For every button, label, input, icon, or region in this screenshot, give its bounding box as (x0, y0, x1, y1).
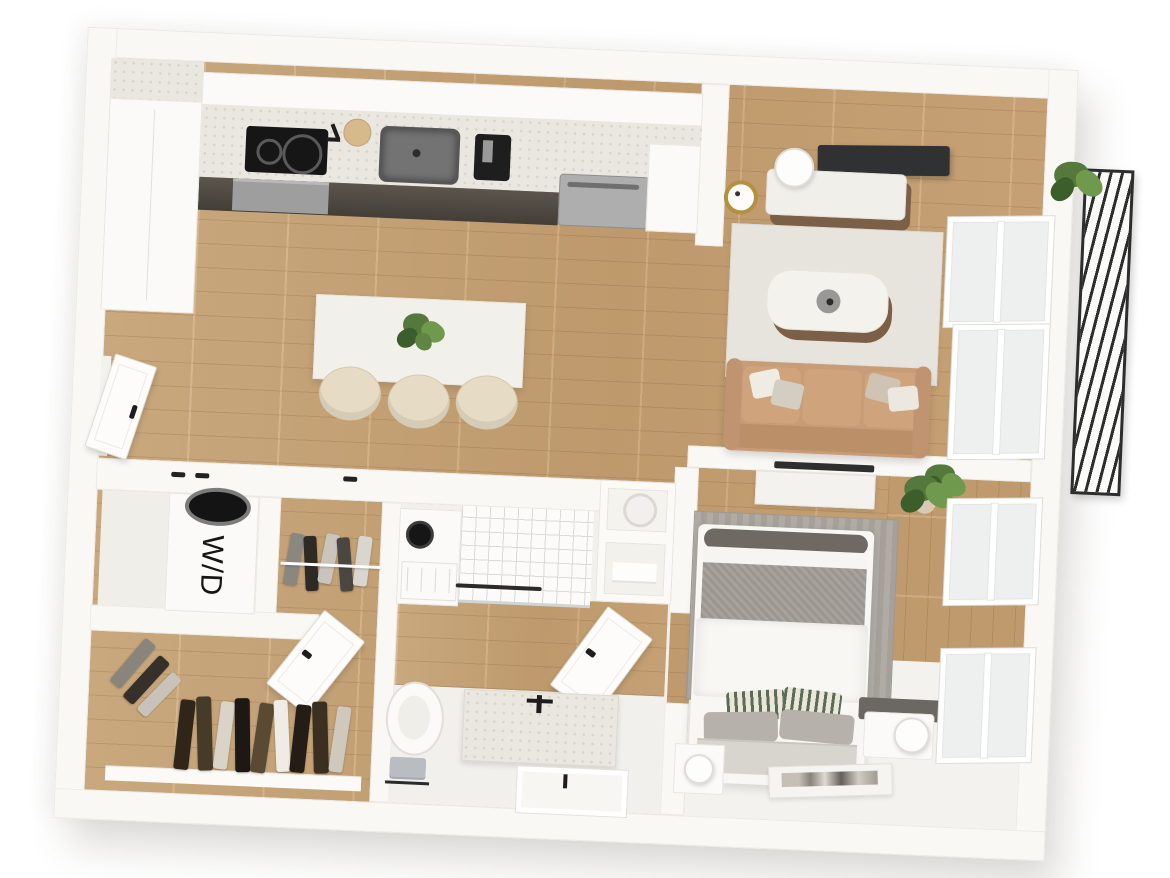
floor-plan-canvas: W/D (0, 0, 1170, 878)
corner-counter (110, 58, 205, 104)
washer-dryer-label-wrap: W/D (164, 519, 258, 613)
kitchen-end-cabinet (645, 143, 701, 233)
range-base (232, 178, 329, 214)
closet-door-handle (343, 476, 357, 482)
bedroom-dresser (755, 470, 876, 509)
coffee-maker-carafe (482, 140, 493, 162)
mirror-faucet-reflection (563, 774, 568, 788)
washer-dryer-label: W/D (193, 534, 230, 597)
living-balcony-door (948, 324, 1050, 459)
vanity-mirror-reflection (516, 766, 628, 817)
bedroom-window-1 (943, 498, 1042, 605)
vanity-faucet (536, 695, 542, 713)
sofa-cushion (802, 368, 862, 426)
bath-open-drawer (400, 561, 458, 601)
closet-door-handle (195, 473, 209, 479)
bed-blanket (700, 562, 866, 627)
sink-faucet-spout (326, 137, 340, 142)
shower (458, 506, 594, 608)
closet-door-handle (171, 472, 185, 478)
vanity-faucet-handle (541, 699, 553, 704)
living-window-1 (943, 216, 1054, 327)
apartment-plan: W/D (53, 27, 1079, 862)
sofa-pillow (887, 385, 919, 412)
artwork-print (781, 771, 877, 788)
tall-pantry-cabinet (100, 98, 202, 314)
balcony-railing (1070, 168, 1134, 496)
toilet-mat-towels (389, 757, 426, 779)
bedroom-window-2 (936, 648, 1035, 763)
folded-towels (612, 562, 657, 582)
bed-pillow (704, 712, 778, 743)
vanity-faucet-handle (527, 699, 539, 704)
